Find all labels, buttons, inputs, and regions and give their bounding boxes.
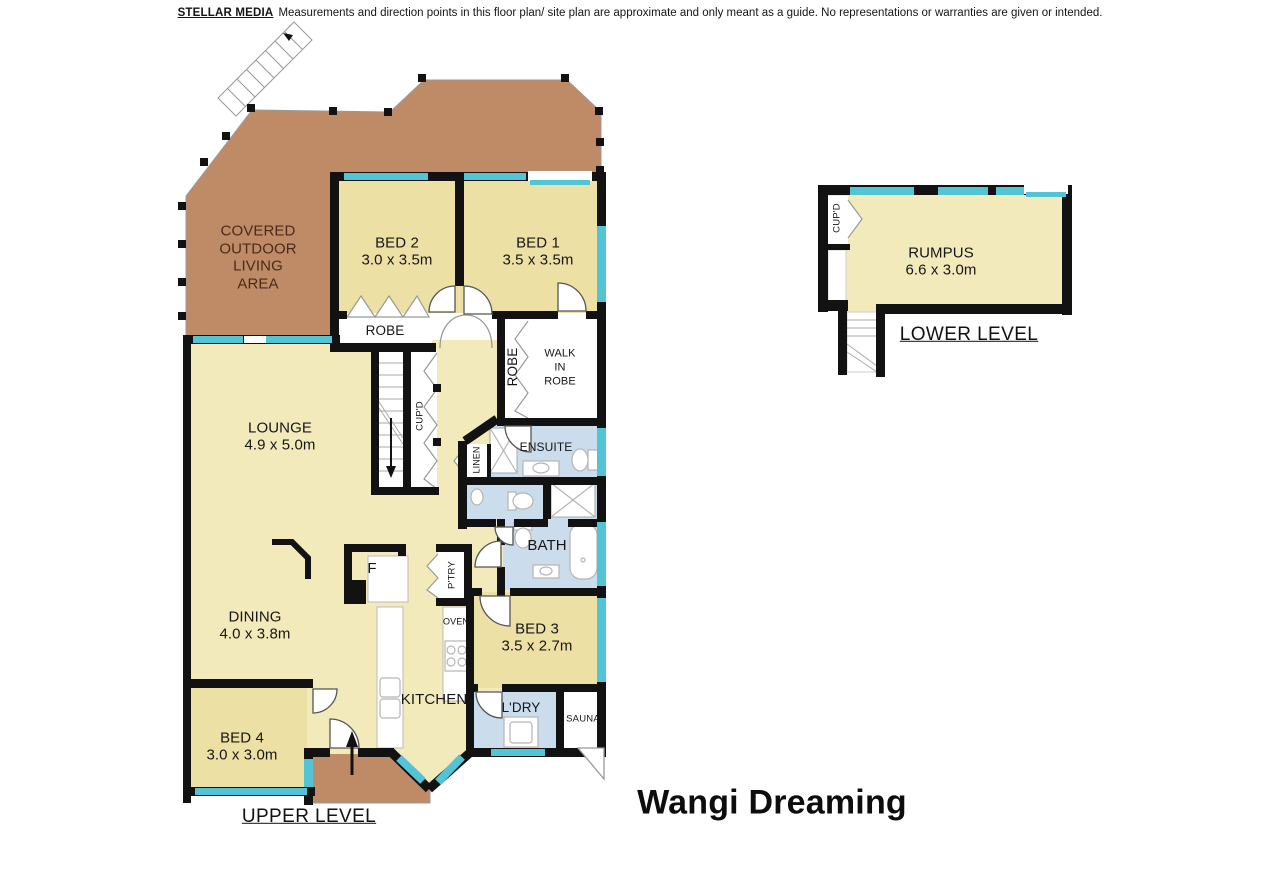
upper-level-label: UPPER LEVEL (242, 806, 376, 828)
exterior-stairs-icon (218, 22, 312, 116)
room-label-dining: DINING4.0 x 3.8m (219, 591, 290, 662)
room-label-cupd-lower: CUP'D (831, 203, 842, 233)
room-label-robe-wir: ROBE (505, 348, 521, 387)
room-label-bed2: BED 23.0 x 3.5m (361, 217, 432, 288)
room-label-bed4: BED 43.0 x 3.0m (206, 712, 277, 783)
room-label-rumpus: RUMPUS6.6 x 3.0m (905, 227, 976, 298)
room-label-cupd-upper: CUP'D (414, 401, 425, 431)
toilet-icon (588, 450, 598, 470)
bathtub-icon (570, 524, 597, 579)
sink-icon (380, 678, 400, 697)
room-label-covered-outdoor: COVERED OUTDOOR LIVING AREA (219, 223, 296, 294)
room-label-sauna: SAUNA (566, 713, 600, 724)
room-label-pantry: P'TRY (446, 561, 457, 589)
room-label-linen: LINEN (472, 446, 483, 473)
room-label-ensuite: ENSUITE (520, 440, 573, 454)
lower-level-label: LOWER LEVEL (900, 324, 1039, 346)
room-label-robe: ROBE (366, 323, 405, 339)
plan-title: Wangi Dreaming (637, 784, 907, 823)
floor-plan-graphic (0, 0, 1280, 877)
room-label-laundry: L'DRY (502, 700, 541, 716)
cooktop-icon (445, 641, 468, 671)
room-label-bed1: BED 13.5 x 3.5m (502, 217, 573, 288)
room-label-bed3: BED 33.5 x 2.7m (501, 603, 572, 674)
sauna-door (578, 748, 604, 779)
room-label-walk-in-robe: WALK IN ROBE (544, 347, 576, 388)
basin-icon (471, 489, 483, 505)
room-label-oven: OVEN (443, 617, 469, 628)
room-label-lounge: LOUNGE4.9 x 5.0m (244, 402, 315, 473)
floor-plan-page: STELLAR MEDIAMeasurements and direction … (0, 0, 1280, 877)
room-label-bath: BATH (527, 537, 566, 555)
room-label-kitchen: KITCHEN (401, 691, 468, 709)
room-label-fridge: F (367, 560, 376, 578)
